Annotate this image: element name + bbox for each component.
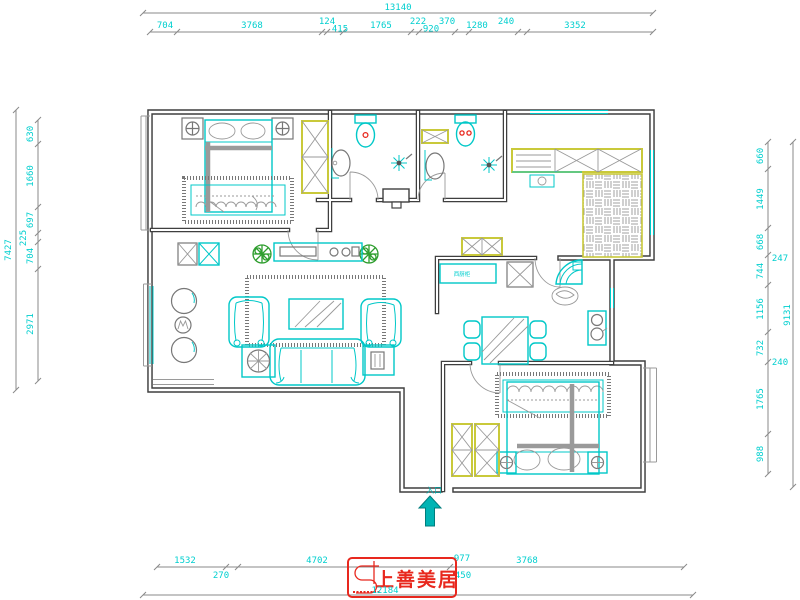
hall-cabinets	[178, 238, 533, 287]
wall-notch	[383, 189, 409, 202]
dim-label: 247	[772, 254, 788, 264]
armchair-left	[229, 297, 269, 347]
dim-label: 1765	[370, 21, 392, 31]
living-rug	[247, 277, 384, 345]
bathroom2-fixtures	[422, 115, 502, 180]
figure-sketch	[552, 287, 578, 305]
sofa	[270, 339, 365, 385]
exterior-walls	[150, 112, 652, 490]
tile-floor	[583, 174, 642, 257]
decor-m-circle	[175, 317, 191, 333]
dim-total-left: 7427	[4, 239, 14, 261]
dim-label: 1532	[174, 556, 196, 566]
bed-symbol	[507, 382, 599, 474]
wardrobe-symbol	[452, 424, 472, 476]
nightstand-right	[588, 452, 607, 473]
dim-label: 704	[26, 248, 36, 264]
left-dimensions: 7427 630 1660 697 225 704 2971	[4, 126, 36, 335]
dim-label: 3768	[241, 21, 263, 31]
dim-label: 4702	[306, 556, 328, 566]
living-room	[172, 243, 402, 385]
west-cabinet-label: 西厨柜	[454, 270, 471, 278]
nightstand-right	[272, 118, 293, 139]
bed-symbol	[205, 120, 272, 212]
dim-label: 240	[772, 358, 788, 368]
kitchen-sink	[512, 172, 582, 187]
wall-notch-tab	[392, 202, 401, 208]
dim-label: 3352	[564, 21, 586, 31]
tea-cart	[588, 311, 607, 345]
dining-table	[464, 317, 546, 364]
dim-total-top: 13140	[384, 3, 411, 13]
cabinet-symbol	[422, 130, 448, 143]
wardrobe-symbol	[475, 424, 499, 476]
dining-room: 西厨柜	[440, 260, 607, 364]
logo: 上善美居	[348, 558, 459, 597]
dim-label: 744	[756, 263, 766, 279]
rug-symbol	[497, 374, 609, 416]
dim-label: 630	[26, 126, 36, 142]
dim-label: 1765	[756, 388, 766, 410]
decor-ring	[172, 289, 197, 314]
shoe-cabinet-dark	[178, 243, 197, 265]
plant-icon	[253, 245, 271, 263]
side-table-right	[363, 345, 394, 375]
hall-cabinet-yellow	[462, 238, 502, 255]
interior-walls	[152, 112, 612, 490]
dim-label: 732	[756, 340, 766, 356]
dim-total-bottom: 12184	[371, 586, 398, 596]
dim-label: 370	[439, 17, 455, 27]
dim-label: 415	[332, 25, 348, 35]
toilet-symbol	[455, 115, 476, 146]
bathroom1-fixtures	[332, 115, 412, 178]
dim-label: 660	[756, 148, 766, 164]
dim-label: 697	[26, 212, 36, 228]
dim-label: 3768	[516, 556, 538, 566]
wardrobe-symbol	[302, 121, 328, 193]
bedroom2-furniture	[452, 374, 609, 476]
decor-ring	[172, 338, 197, 363]
coffee-table	[289, 299, 343, 329]
dim-label: 1156	[756, 298, 766, 320]
dim-label: 225	[19, 230, 29, 246]
top-dimensions: 13140 704 3768 124 415 1765 222 920 370 …	[157, 3, 586, 35]
dim-label: 704	[157, 21, 173, 31]
toilet-symbol	[355, 115, 376, 147]
dim-total-right: 9131	[783, 304, 793, 326]
west-kitchen-counter: 西厨柜	[440, 264, 496, 283]
dim-label: 988	[756, 446, 766, 462]
kitchen-counter	[512, 149, 642, 172]
dim-label: 2971	[26, 313, 36, 335]
dim-label: 240	[498, 17, 514, 27]
dim-label: 920	[423, 25, 439, 35]
dining-cabinet	[507, 262, 533, 287]
dimension-lines	[16, 13, 793, 595]
sink-symbol	[332, 148, 350, 178]
dim-label: 1660	[26, 165, 36, 187]
entry-label: 入口	[426, 486, 442, 495]
dim-label: 270	[213, 571, 229, 581]
plant-icon	[360, 245, 378, 263]
shoe-cabinet-cyan	[199, 243, 219, 265]
dim-label: 668	[756, 234, 766, 250]
dimension-ticks	[13, 10, 796, 598]
floor-plan-canvas: 西厨柜	[0, 0, 800, 600]
floor-plan-page: 西厨柜	[0, 0, 800, 600]
dim-label: 1449	[756, 188, 766, 210]
dim-label: 1280	[466, 21, 488, 31]
entry-arrow-icon	[419, 496, 441, 526]
bedroom1-furniture	[182, 118, 328, 222]
right-dimensions: 9131 660 1449 668 744 1156 732 1765 988 …	[756, 148, 793, 462]
armchair-right	[361, 299, 401, 347]
shower-symbol	[391, 154, 412, 171]
figure-sketch-line	[556, 291, 574, 299]
kitchen-area	[512, 149, 642, 257]
rug-symbol	[184, 178, 292, 222]
nightstand-left	[182, 118, 203, 139]
shower-symbol	[481, 156, 502, 173]
